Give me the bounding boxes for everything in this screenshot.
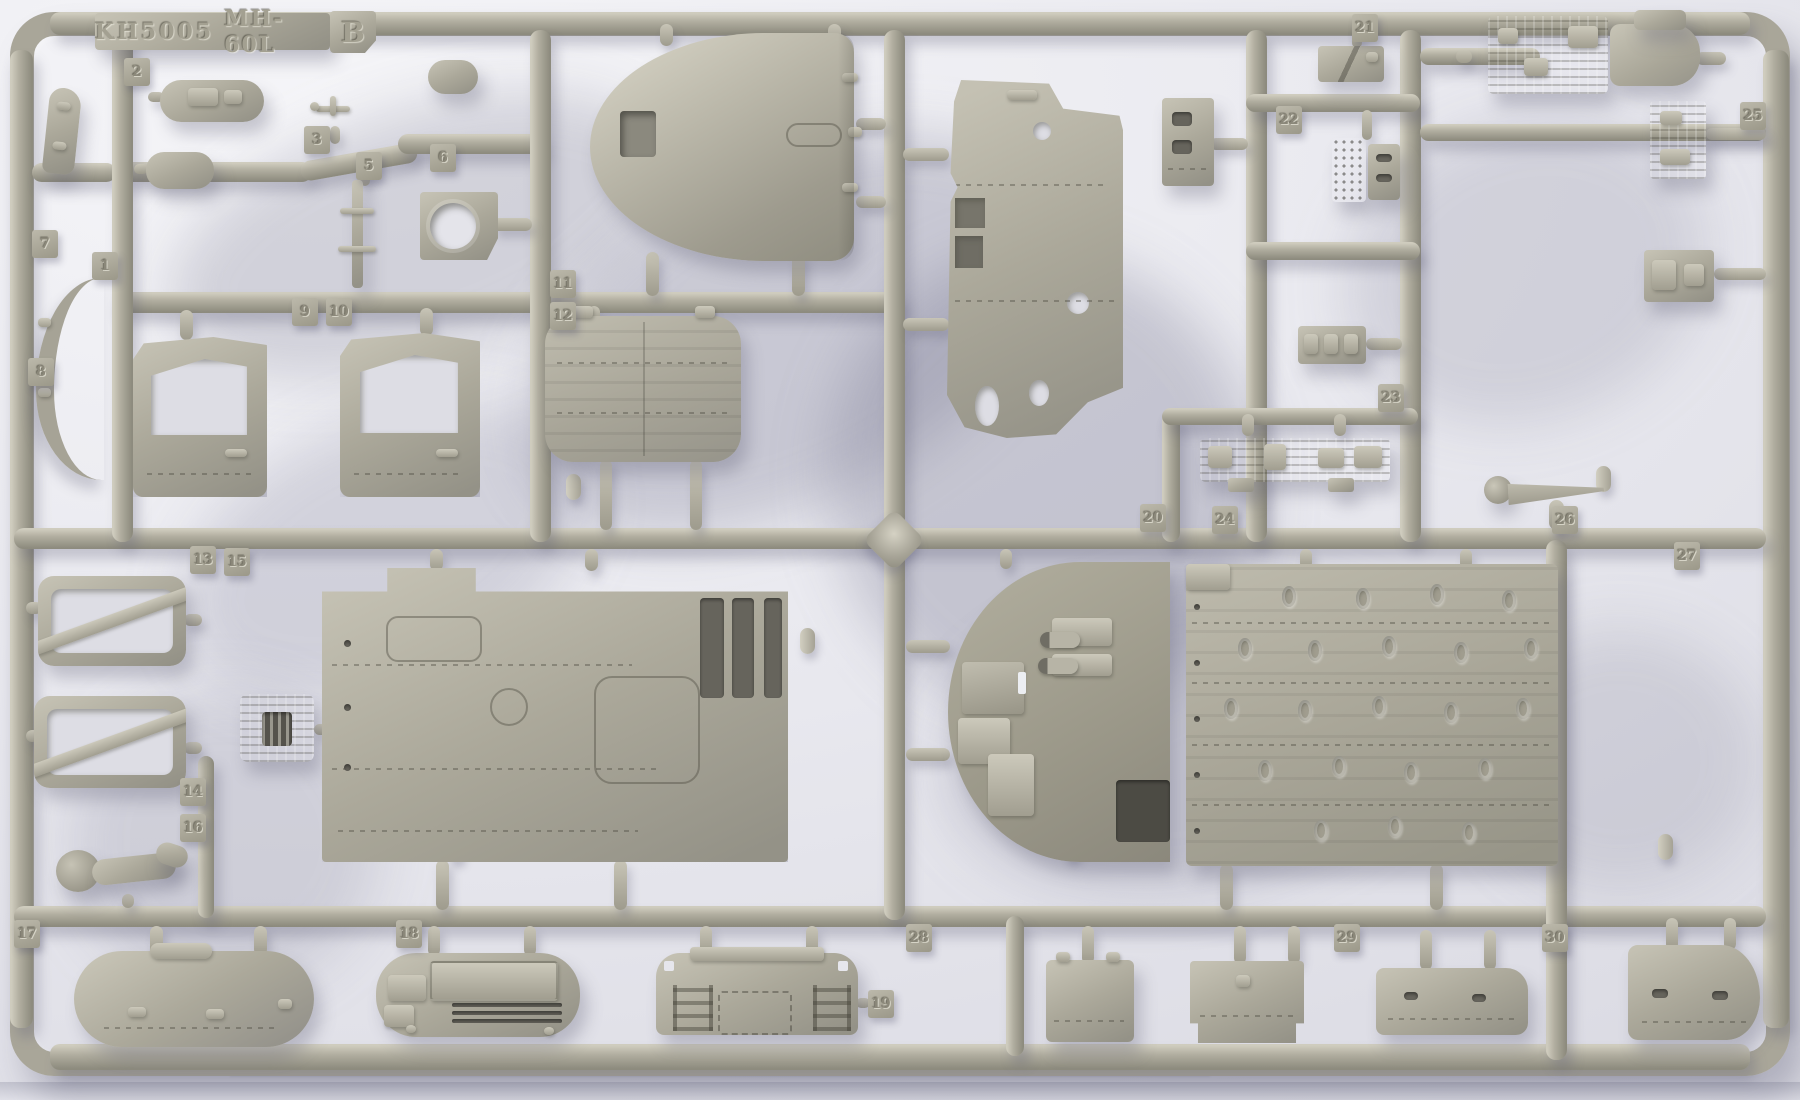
- panel-slot: [1712, 991, 1728, 1000]
- sprue-gate: [428, 926, 440, 956]
- part-tab-25: 25: [1740, 102, 1766, 130]
- panel-hook: [1106, 952, 1120, 962]
- antenna-crossbar: [338, 246, 376, 252]
- door-handle: [225, 449, 247, 457]
- deck-window-cutout: [955, 198, 985, 228]
- sprue-gate: [600, 460, 612, 530]
- sprue-gate: [856, 196, 886, 208]
- sprue-gate: [184, 742, 202, 754]
- cargo-rivet: [1194, 604, 1200, 610]
- sprue-gate: [420, 308, 433, 336]
- part-tab-17: 17: [14, 920, 40, 948]
- strip-detail: [56, 101, 71, 110]
- tie-down-fitting: [1404, 762, 1418, 783]
- panel-seam: [1200, 1015, 1294, 1017]
- avionics-slot: [1376, 154, 1392, 162]
- floor-bulkhead-slot: [732, 598, 754, 698]
- part-instrument-panel: [1488, 16, 1608, 94]
- cowl-box: [388, 975, 426, 1001]
- bulkhead-dashed-panel: [718, 991, 792, 1035]
- console-foot: [1328, 478, 1354, 492]
- avionics-slot: [1376, 174, 1392, 182]
- tie-down-fitting: [1298, 700, 1312, 721]
- runner-v3: [884, 30, 905, 920]
- part-center-console: [1200, 434, 1390, 492]
- part-tab-8: 8: [28, 358, 54, 386]
- part-tab-12: 12: [550, 302, 576, 330]
- part-breaker-panel: [240, 694, 314, 762]
- rack-module: [1304, 334, 1318, 354]
- part-door-panel-b: [1190, 961, 1304, 1043]
- bulkhead-seam: [557, 362, 729, 364]
- sponson-hump: [150, 943, 212, 959]
- cargo-seam: [1192, 804, 1550, 806]
- floor-circle-detail: [490, 688, 528, 726]
- sprue-gate: [903, 318, 949, 331]
- part-sensor-pod: [160, 80, 264, 122]
- cockpit-hatch-opening: [1116, 780, 1170, 842]
- sprue-gate: [1288, 926, 1300, 964]
- part-door-panel-a: [1046, 960, 1134, 1042]
- mirror-corner: [1366, 52, 1378, 62]
- part-tab-23: 23: [1378, 384, 1404, 412]
- part-equipment-box-lower: [1644, 250, 1714, 302]
- floor-seam: [332, 664, 632, 666]
- tie-down-fitting: [1314, 820, 1328, 841]
- runner-h2: [112, 292, 902, 313]
- tie-down-fitting: [1282, 586, 1296, 607]
- part-door-panel-d: [1628, 945, 1760, 1040]
- avionics-box-right: [1368, 144, 1400, 200]
- part-upper-fuselage-deck: [947, 80, 1123, 438]
- sprue-gate: [1366, 338, 1402, 350]
- panel-screen: [1568, 26, 1598, 48]
- bulkhead-notch: [664, 961, 674, 971]
- panel-seam: [1642, 1021, 1746, 1023]
- part-tab-28: 28: [906, 924, 932, 952]
- panel-seam: [1388, 1018, 1516, 1020]
- part-tab-14: 14: [180, 778, 206, 806]
- runner-v9: [1006, 916, 1024, 1056]
- tie-down-fitting: [1462, 822, 1476, 843]
- sprue-gate: [903, 148, 949, 161]
- sponson-latch: [206, 1009, 224, 1019]
- part-tab-22: 22: [1276, 106, 1302, 134]
- part-door-panel-c: [1376, 968, 1528, 1035]
- sprue-gate: [430, 549, 443, 571]
- part-cabin-floor: [322, 568, 788, 862]
- strip-detail: [38, 318, 51, 327]
- sprue-gate: [646, 252, 659, 296]
- deck-hole: [1033, 122, 1051, 140]
- sprue-gate: [1210, 138, 1248, 150]
- part-seat-frame-upper: [38, 576, 186, 666]
- nose-edge-shade: [838, 33, 854, 261]
- sprue-letter-text: B: [341, 16, 365, 49]
- part-tab-9: 9: [292, 298, 318, 326]
- floor-seam: [338, 830, 638, 832]
- part-seat-frame-lower: [34, 696, 186, 788]
- equipment-detail: [1684, 264, 1704, 286]
- strip-detail: [38, 388, 51, 397]
- panel-slot: [1404, 992, 1418, 1000]
- cargo-rivet: [1194, 716, 1200, 722]
- part-tab-18: 18: [396, 920, 422, 948]
- part-avionics-boxes: [1332, 138, 1402, 202]
- breaker-connector: [262, 712, 292, 746]
- sprue-pin-bump: [1658, 834, 1673, 860]
- rack-module: [1344, 334, 1358, 354]
- table-edge-shadow: [0, 1082, 1800, 1100]
- deck-hole: [1067, 292, 1089, 314]
- bulkhead-seam: [643, 322, 645, 456]
- equipment-detail: [1660, 149, 1690, 165]
- sprue-gate: [690, 460, 702, 530]
- sprue-gate: [330, 126, 340, 144]
- part-fairing: [146, 152, 214, 189]
- sprue-gate: [184, 614, 202, 626]
- cargo-floor-lip: [1186, 564, 1230, 590]
- sprue-gate: [1362, 110, 1372, 140]
- tie-down-fitting: [1258, 760, 1272, 781]
- part-tab-6: 6: [430, 144, 456, 172]
- part-tab-11: 11: [550, 270, 576, 298]
- runner-v1: [112, 30, 133, 542]
- sprue-letter-plate: B: [330, 11, 376, 53]
- part-tab-5: 5: [356, 152, 382, 180]
- deck-fitting: [1007, 90, 1037, 100]
- antenna-crossbar: [340, 208, 374, 214]
- pod-detail: [224, 90, 242, 104]
- nose-hatch-outline: [786, 123, 842, 147]
- part-glare-shield: [1610, 24, 1700, 86]
- sprue-gate: [1484, 930, 1496, 970]
- floor-bulkhead-slot: [700, 598, 724, 698]
- bulkhead-seam: [557, 412, 729, 414]
- deck-seam: [955, 300, 1115, 302]
- cockpit-pin-fitting: [1038, 658, 1078, 674]
- panel-seam: [1054, 1020, 1124, 1022]
- sprue-gate: [1234, 926, 1246, 964]
- door-window-cutout: [360, 355, 458, 433]
- cowl-knob: [406, 1025, 416, 1033]
- runner-right: [1763, 50, 1789, 1028]
- equipment-detail: [1652, 260, 1676, 290]
- pod-detail: [188, 88, 218, 106]
- console-foot: [1228, 478, 1254, 492]
- ladder-column: [813, 985, 851, 1031]
- tie-down-fitting: [1454, 642, 1468, 663]
- part-tab-26: 26: [1552, 506, 1578, 534]
- panel-screen: [1498, 28, 1518, 44]
- door-window-cutout: [151, 359, 247, 435]
- bulkhead-notch: [838, 961, 848, 971]
- part-tab-27: 27: [1674, 542, 1700, 570]
- relay-hole: [1172, 112, 1192, 126]
- cowl-vent-slat: [452, 1003, 562, 1007]
- part-tab-10: 10: [326, 298, 352, 326]
- part-tab-7: 7: [32, 230, 58, 258]
- sprue-gate: [1420, 930, 1432, 970]
- floor-hatch-outline: [594, 676, 700, 784]
- console-screen: [1354, 446, 1382, 468]
- relay-seam: [1168, 168, 1208, 170]
- avionics-box-left: [1332, 138, 1366, 202]
- part-relay-box: [1162, 98, 1214, 186]
- floor-rivet: [344, 764, 351, 771]
- cargo-rivet: [1194, 660, 1200, 666]
- tie-down-fitting: [1224, 698, 1238, 719]
- deck-oval-slot: [1029, 380, 1049, 406]
- part-mirror-box: [1318, 46, 1384, 82]
- sprue-gate: [1456, 50, 1472, 63]
- part-sponson-cover: [74, 951, 314, 1047]
- tie-down-fitting: [1356, 588, 1370, 609]
- tie-down-fitting: [1388, 816, 1402, 837]
- sprue-gate: [614, 860, 627, 910]
- nose-window-cutout: [620, 111, 656, 157]
- bulkhead-nub: [695, 306, 715, 318]
- part-tab-21: 21: [1352, 14, 1378, 42]
- bulkhead-top-ridge: [690, 947, 824, 961]
- tie-down-fitting: [1502, 590, 1516, 611]
- floor-bulkhead-slot: [764, 598, 782, 698]
- console-screen: [1264, 444, 1286, 470]
- sprue-gate: [1082, 926, 1094, 964]
- part-tab-29: 29: [1334, 924, 1360, 952]
- deck-seam: [955, 184, 1105, 186]
- equipment-detail: [1660, 111, 1682, 125]
- sprue-gate: [660, 24, 673, 46]
- cockpit-pin-fitting: [1040, 632, 1080, 648]
- tie-down-fitting: [1238, 638, 1252, 659]
- panel-screen: [1524, 58, 1548, 76]
- sprue-gate: [1220, 864, 1233, 910]
- cowl-panel: [430, 961, 558, 1001]
- sprue-pin-bump: [800, 628, 815, 654]
- sprue-gate: [492, 218, 532, 231]
- tie-down-fitting: [1372, 696, 1386, 717]
- cockpit-console-box: [988, 754, 1034, 816]
- sponson-latch: [278, 999, 292, 1009]
- title-plate: KH5005 MH-60L: [95, 13, 330, 50]
- tie-down-fitting: [1444, 702, 1458, 723]
- panel-detail: [1236, 975, 1250, 987]
- panel-slot: [1652, 989, 1668, 998]
- runner-tallframe-h2: [1246, 242, 1420, 260]
- console-screen: [1318, 448, 1344, 468]
- floor-panel-outline: [386, 616, 482, 662]
- part-tab-24: 24: [1212, 506, 1238, 534]
- door-seam: [147, 473, 251, 475]
- ring-mount-hole: [430, 203, 476, 249]
- part-tab-13: 13: [190, 546, 216, 574]
- sprue-gate: [1430, 864, 1443, 910]
- kit-model-text: MH-60L: [224, 6, 330, 58]
- tie-down-fitting: [1430, 584, 1444, 605]
- sponson-rivet-row: [104, 1027, 274, 1029]
- door-handle: [436, 449, 458, 457]
- part-tab-1: 1: [92, 252, 118, 280]
- tie-down-fitting: [1332, 756, 1346, 777]
- sprue-gate: [122, 894, 134, 908]
- sprue-gate: [585, 549, 598, 571]
- strip-detail: [52, 141, 67, 150]
- sprue-gate: [180, 310, 193, 340]
- cargo-seam: [1192, 622, 1550, 624]
- part-antenna-ball: [1484, 476, 1512, 504]
- door-seam: [354, 473, 464, 475]
- runner-v2: [530, 30, 551, 542]
- sprue-photo: KH5005 MH-60L B: [0, 0, 1800, 1100]
- deck-window-cutout: [955, 236, 983, 268]
- sprue-gate: [906, 640, 950, 653]
- tie-down-fitting: [1478, 758, 1492, 779]
- cargo-rivet: [1194, 772, 1200, 778]
- console-screen: [1208, 446, 1232, 468]
- sprue-pin-bump: [566, 474, 581, 500]
- part-glare-shield-step: [1634, 10, 1686, 30]
- runner-tallframe-h1: [1246, 94, 1420, 112]
- part-ribbed-bulkhead: [545, 316, 741, 462]
- sprue-gate: [524, 926, 536, 956]
- cowl-vent-slat: [452, 1019, 562, 1023]
- part-pitot-ball: [310, 102, 319, 111]
- part-cockpit-door-right: [340, 333, 480, 497]
- cockpit-console-box: [962, 662, 1024, 714]
- part-ladder-bulkhead: [656, 953, 858, 1035]
- cockpit-slot-light: [1018, 672, 1026, 694]
- part-tab-30: 30: [1542, 924, 1568, 952]
- panel-slot: [1472, 994, 1486, 1002]
- floor-rivet: [344, 704, 351, 711]
- runner-bottom: [50, 1044, 1750, 1070]
- cargo-rivet: [1194, 828, 1200, 834]
- sprue-gate: [1714, 268, 1766, 280]
- cowl-knob: [544, 1027, 554, 1035]
- part-tab-15: 15: [224, 548, 250, 576]
- rack-module: [1324, 334, 1338, 354]
- cowl-box: [384, 1005, 414, 1027]
- sprue-gate: [436, 860, 449, 910]
- cowl-vent-slat: [452, 1011, 562, 1015]
- part-cargo-floor: [1186, 564, 1558, 866]
- ladder-column: [673, 985, 713, 1031]
- cargo-seam: [1192, 744, 1550, 746]
- tie-down-fitting: [1524, 638, 1538, 659]
- cargo-seam: [1192, 682, 1550, 684]
- part-ring-mount: [420, 192, 498, 260]
- part-tab-20: 20: [1140, 504, 1166, 532]
- sprue-gate: [906, 748, 950, 761]
- sprue-gate: [1696, 52, 1726, 65]
- part-tab-2: 2: [124, 58, 150, 86]
- part-cockpit-door-left: [133, 337, 267, 497]
- part-tab-16: 16: [180, 814, 206, 842]
- deck-oval-slot: [975, 386, 999, 426]
- sprue-gate: [1334, 414, 1346, 436]
- tie-down-fitting: [1516, 698, 1530, 719]
- panel-hook: [1056, 952, 1070, 962]
- part-tab-19: 19: [868, 990, 894, 1018]
- part-avionics-rack: [1298, 326, 1366, 364]
- part-pitot-mast: [330, 96, 336, 116]
- relay-hole: [1172, 140, 1192, 154]
- part-tab-3: 3: [304, 126, 330, 154]
- sponson-latch: [128, 1007, 146, 1017]
- part-engine-cowl: [376, 953, 580, 1037]
- floor-rivet: [344, 640, 351, 647]
- part-small-cylinder: [428, 60, 478, 94]
- kit-number-text: KH5005: [95, 19, 214, 45]
- runner-h1b: [398, 134, 544, 154]
- tie-down-fitting: [1382, 636, 1396, 657]
- part-blade-antenna: [352, 180, 363, 288]
- sprue-gate: [1242, 414, 1254, 436]
- sprue-gate: [1000, 549, 1012, 569]
- part-equipment-box-upper: [1650, 101, 1706, 179]
- tie-down-fitting: [1308, 640, 1322, 661]
